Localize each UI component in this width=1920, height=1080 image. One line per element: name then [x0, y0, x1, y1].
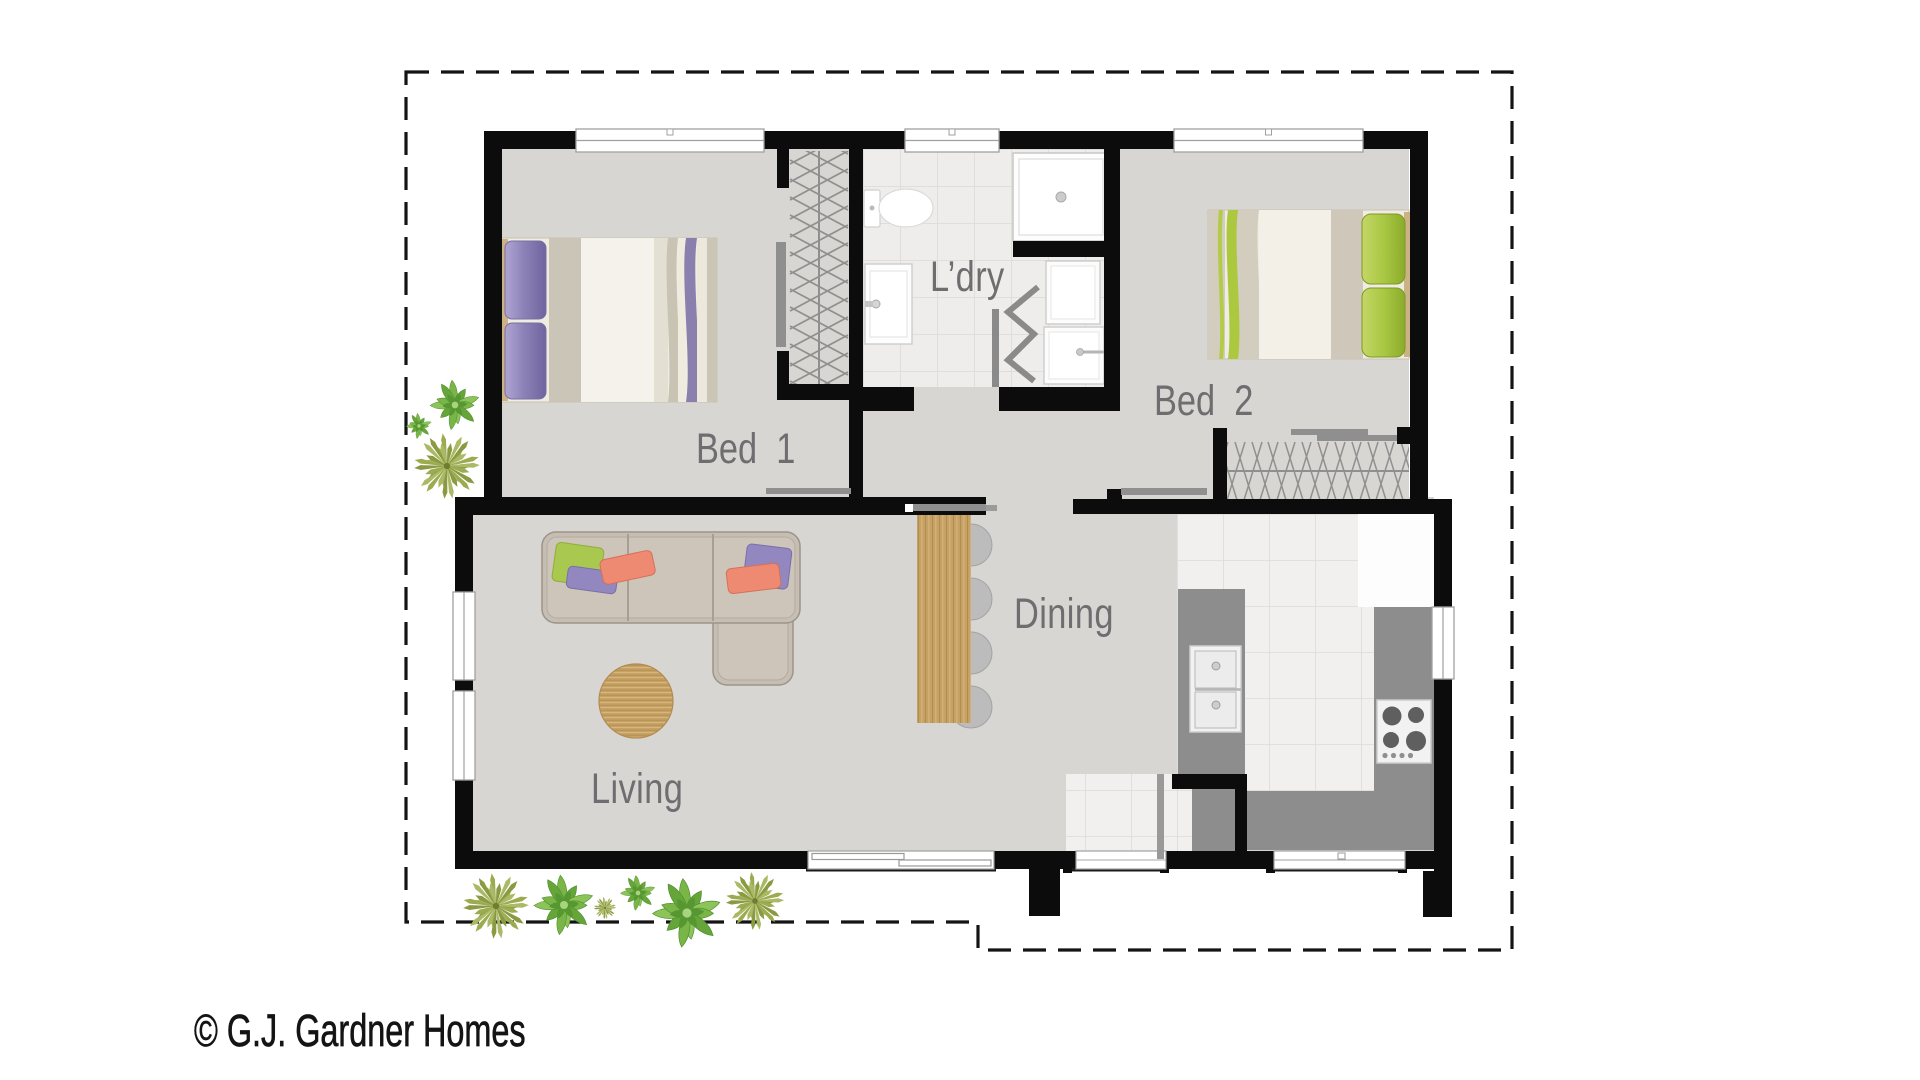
svg-text:© G.J. Gardner Homes: © G.J. Gardner Homes: [194, 1007, 526, 1056]
svg-text:Living: Living: [591, 765, 683, 812]
svg-text:Dining: Dining: [1014, 590, 1114, 637]
svg-text:Bed 1: Bed 1: [696, 425, 795, 472]
svg-text:L’dry: L’dry: [930, 253, 1005, 300]
svg-text:Bed 2: Bed 2: [1154, 377, 1253, 424]
